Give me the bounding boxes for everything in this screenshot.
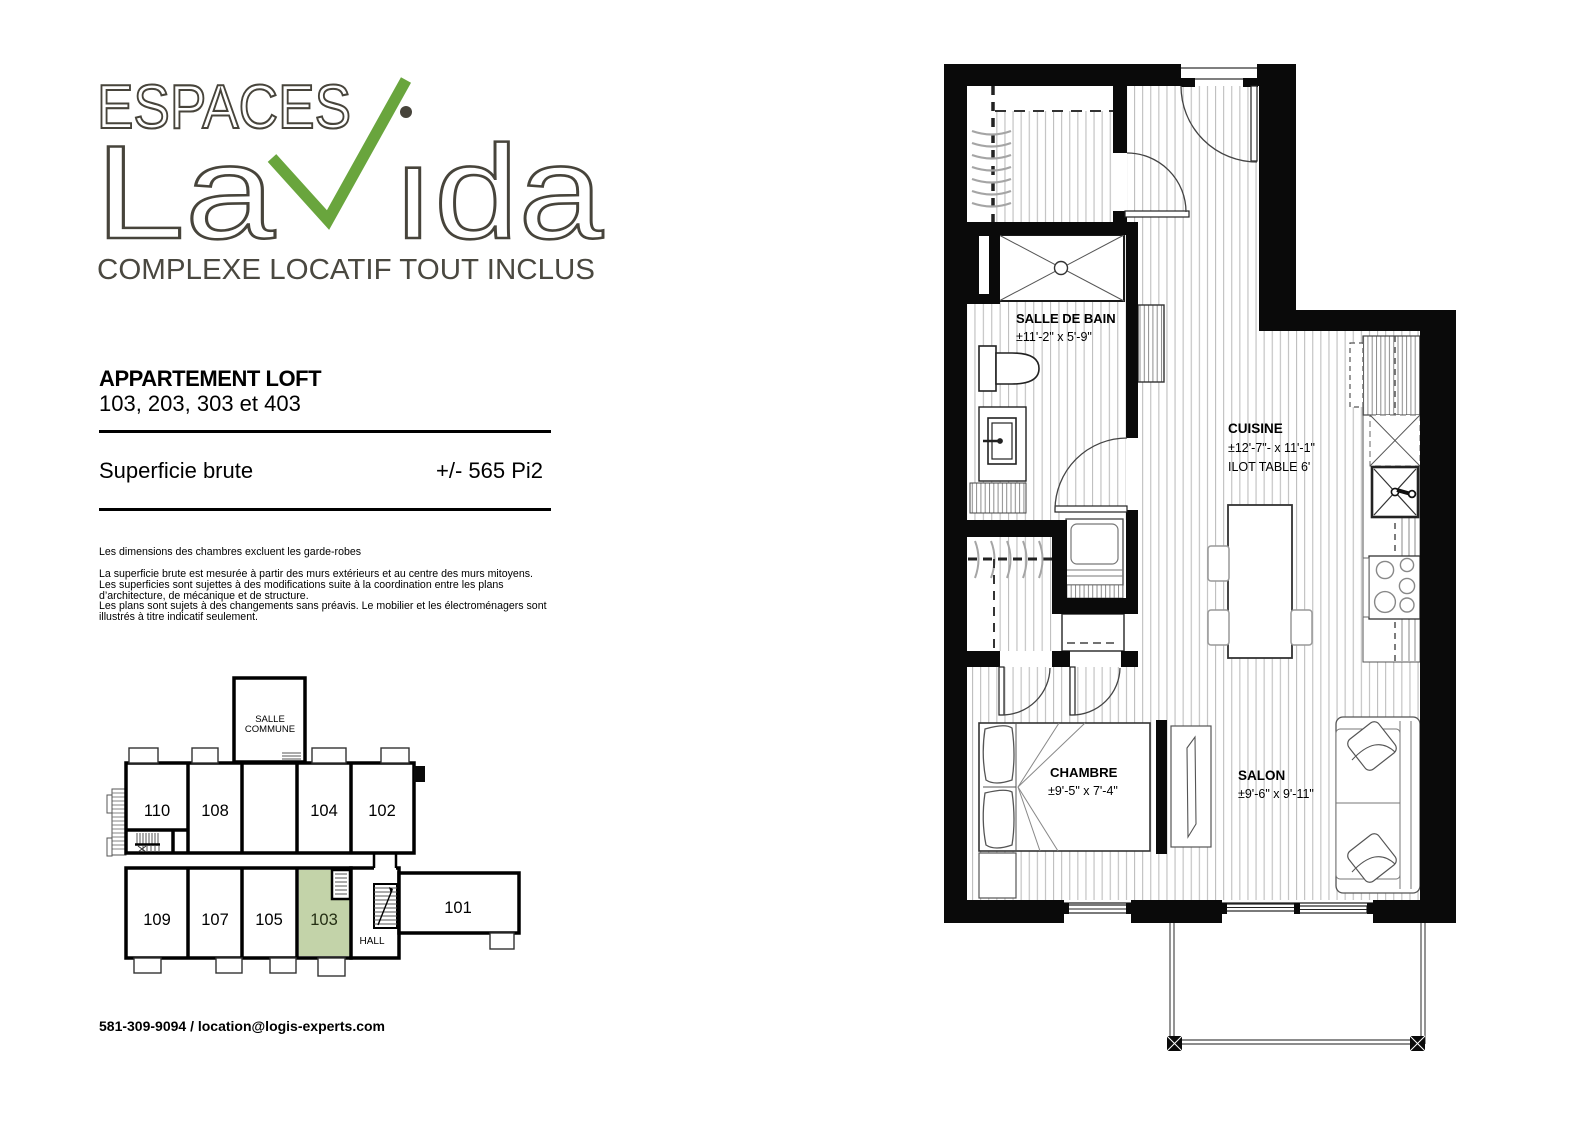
svg-text:SALLE DE BAIN: SALLE DE BAIN xyxy=(1016,311,1116,326)
svg-text:CUISINE: CUISINE xyxy=(1228,421,1283,436)
svg-text:±9'-5" x 7'-4": ±9'-5" x 7'-4" xyxy=(1048,784,1118,798)
svg-text:SALON: SALON xyxy=(1238,768,1285,783)
svg-text:±11'-2" x 5'-9": ±11'-2" x 5'-9" xyxy=(1016,330,1092,344)
svg-text:±12'-7"- x 11'-1": ±12'-7"- x 11'-1" xyxy=(1228,441,1315,455)
svg-text:ILOT TABLE 6': ILOT TABLE 6' xyxy=(1228,460,1310,474)
svg-text:±9'-6" x 9'-11": ±9'-6" x 9'-11" xyxy=(1238,787,1314,801)
svg-text:CHAMBRE: CHAMBRE xyxy=(1050,765,1118,780)
